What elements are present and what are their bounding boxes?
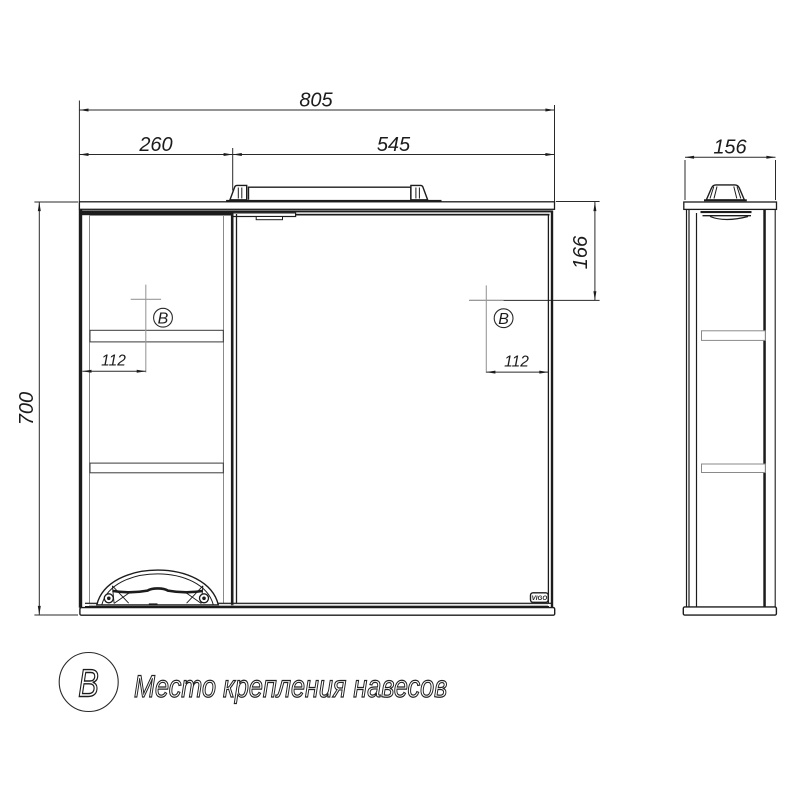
svg-text:112: 112: [504, 353, 529, 370]
svg-text:700: 700: [16, 392, 38, 425]
svg-text:156: 156: [713, 137, 747, 159]
svg-text:В: В: [498, 311, 509, 328]
svg-text:166: 166: [570, 235, 592, 269]
svg-text:Место крепления навесов: Место крепления навесов: [134, 669, 447, 704]
svg-text:260: 260: [138, 134, 172, 156]
svg-text:112: 112: [101, 353, 126, 370]
svg-text:В: В: [78, 662, 99, 705]
svg-text:805: 805: [299, 90, 333, 112]
svg-text:545: 545: [377, 134, 411, 156]
svg-text:В: В: [158, 311, 169, 328]
svg-text:VIGO: VIGO: [532, 595, 548, 602]
